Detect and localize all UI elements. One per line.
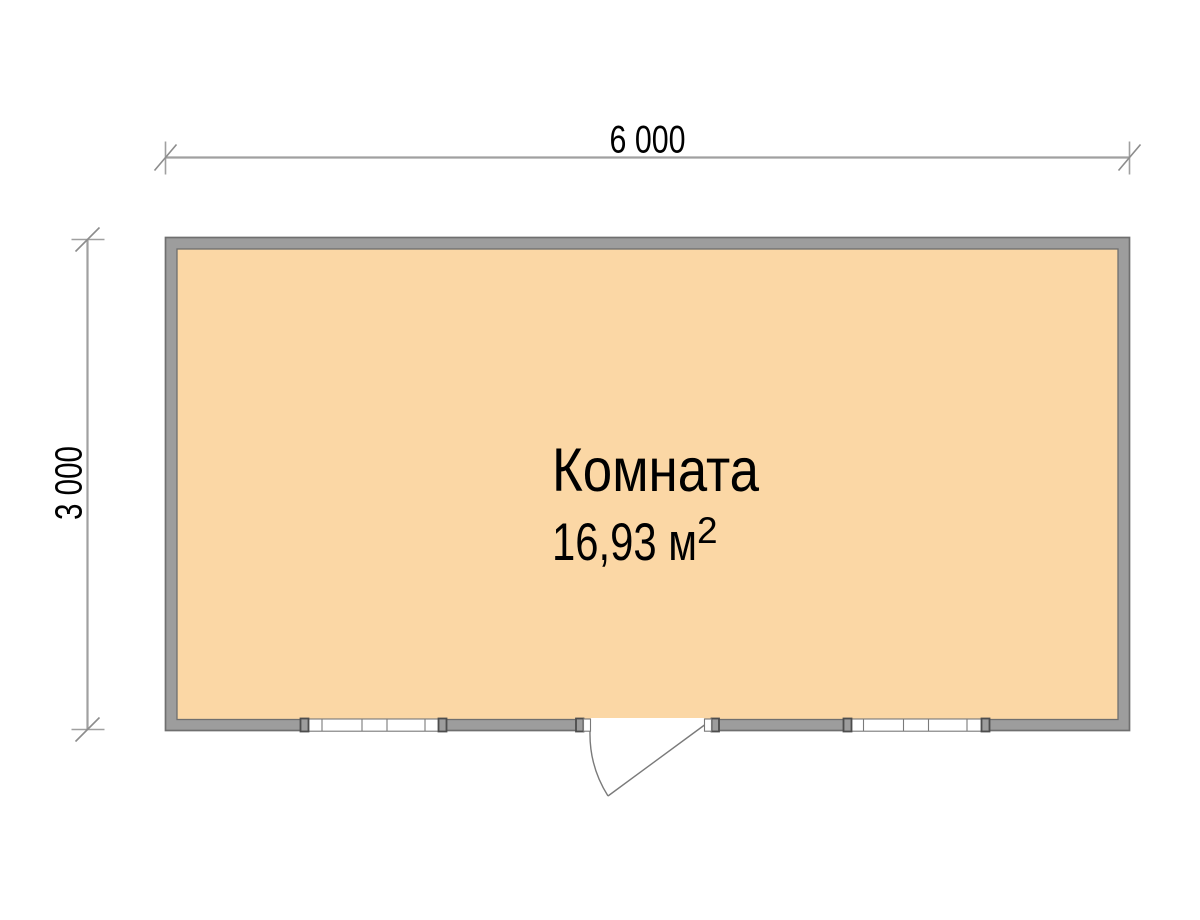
window-right — [844, 719, 990, 732]
floor-plan: 6 000 3 000 — [0, 0, 1200, 920]
wall-end-cap — [301, 719, 309, 732]
dimension-left: 3 000 — [49, 228, 105, 742]
room-name: Комната — [552, 436, 759, 504]
window-right-frame — [852, 719, 982, 731]
dimension-top: 6 000 — [155, 119, 1141, 175]
window-left-frame — [309, 719, 439, 731]
door-opening — [591, 718, 705, 733]
room-area: 16,93 м2 — [552, 510, 718, 572]
dimension-width-label: 6 000 — [610, 119, 686, 162]
dimension-height-label: 3 000 — [49, 446, 91, 520]
room-area-superscript: 2 — [697, 510, 718, 551]
door-jamb-left — [576, 719, 584, 732]
room-area-value: 16,93 м — [552, 513, 697, 572]
door — [576, 718, 719, 796]
door-jamb-right — [712, 719, 720, 732]
door-frame-notch-right — [705, 719, 712, 731]
door-leaf — [608, 725, 705, 796]
door-frame-notch-left — [584, 719, 591, 731]
wall-end-cap — [982, 719, 990, 732]
room: Комната 16,93 м2 — [166, 238, 1130, 797]
window-left — [301, 719, 447, 732]
wall-end-cap — [439, 719, 447, 732]
floor-plan-canvas: 6 000 3 000 — [0, 0, 1200, 920]
wall-end-cap — [844, 719, 852, 732]
door-swing-arc — [590, 732, 608, 797]
